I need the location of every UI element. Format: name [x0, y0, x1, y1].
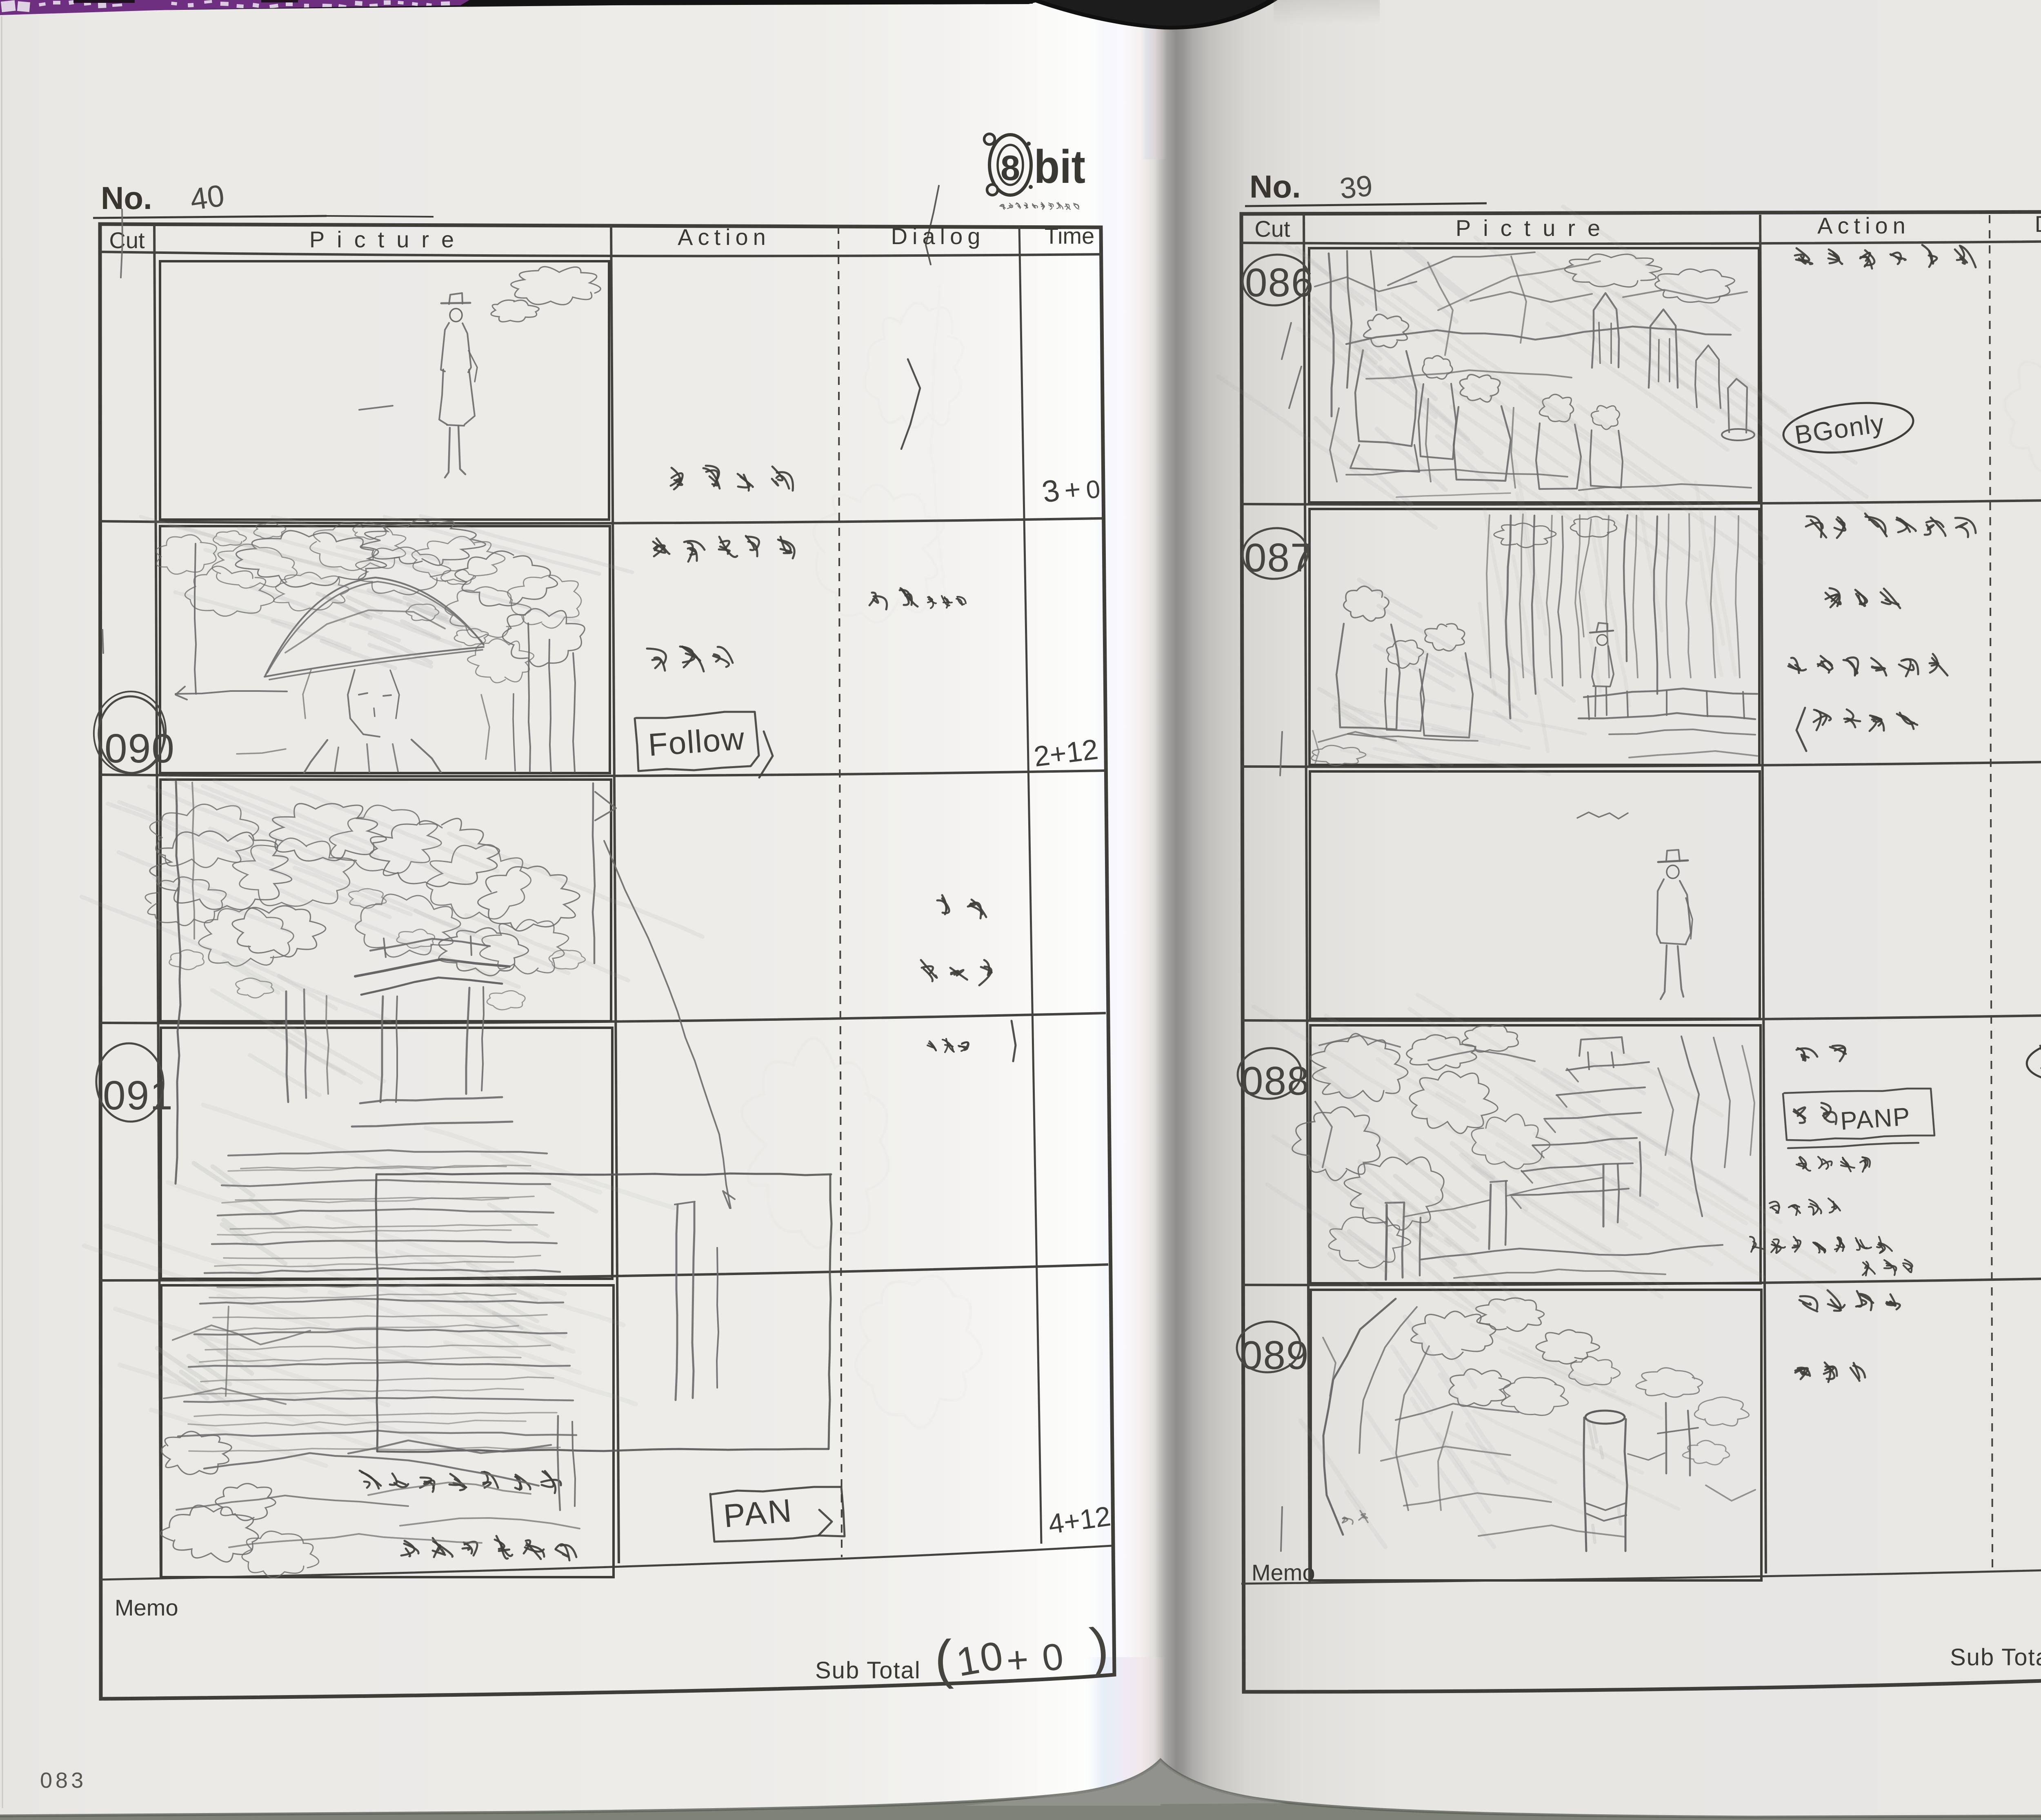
svg-text:Dialog: Dialog — [2035, 211, 2041, 237]
svg-text:+: + — [1063, 473, 1082, 506]
svg-text:0: 0 — [1085, 475, 1102, 504]
svg-text:Sub Total: Sub Total — [1950, 1644, 2041, 1671]
svg-text:086: 086 — [1245, 260, 1314, 305]
svg-text:10: 10 — [953, 1632, 1008, 1685]
svg-text:No.: No. — [1250, 169, 1301, 204]
svg-text:Cut: Cut — [109, 227, 145, 253]
svg-text:Follow: Follow — [647, 720, 746, 763]
svg-text:Time: Time — [1045, 223, 1094, 249]
svg-text:PAN: PAN — [722, 1492, 795, 1534]
svg-text:bit: bit — [1034, 141, 1085, 193]
svg-text:PANP: PANP — [1839, 1102, 1912, 1136]
svg-text:Sub Total: Sub Total — [815, 1657, 921, 1684]
svg-text:Memo: Memo — [115, 1595, 178, 1620]
svg-text:39: 39 — [1338, 169, 1374, 205]
svg-text:8: 8 — [1000, 149, 1020, 188]
svg-text:40: 40 — [188, 178, 227, 217]
svg-text:Action: Action — [1817, 213, 1910, 238]
svg-text:Action: Action — [678, 224, 771, 250]
svg-text:083: 083 — [40, 1768, 87, 1793]
svg-text:Picture: Picture — [1456, 215, 1612, 241]
svg-text:No.: No. — [101, 180, 152, 216]
svg-text:Picture: Picture — [309, 227, 466, 252]
svg-text:(: ( — [933, 1629, 954, 1690]
svg-text:Memo: Memo — [1252, 1560, 1315, 1585]
svg-text:Dialog: Dialog — [891, 223, 985, 249]
svg-text:+: + — [1005, 1638, 1030, 1681]
